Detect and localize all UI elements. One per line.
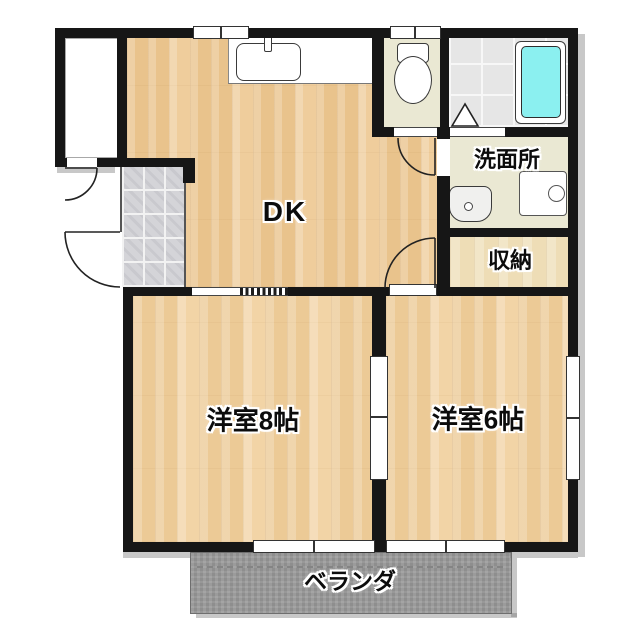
window-room6-veranda-tick [445, 540, 447, 553]
washing-machine-drain-icon [548, 185, 565, 202]
genkan-tile-floor [122, 167, 184, 287]
dk-room8-opening [192, 287, 240, 296]
wash-basin-drain-icon [464, 202, 473, 211]
floor-plan: DK 洗面所 収納 洋室8帖 洋室6帖 ベランダ [0, 0, 640, 640]
storage-label: 収納 [488, 243, 532, 275]
wall-left-lower [123, 287, 133, 552]
shadow-veranda-right [511, 558, 517, 617]
shadow-closet-bottom [57, 167, 115, 173]
window-room6-right-tick [566, 417, 580, 419]
washroom-label: 洗面所 [474, 142, 540, 174]
dk-label: DK [263, 196, 307, 228]
wall-dk-toilet [372, 28, 384, 137]
shadow-veranda-bottom [196, 613, 517, 618]
room-divider-opening [370, 356, 388, 480]
dk-room8-sliding-door [240, 287, 288, 296]
window-room8-veranda-tick [313, 540, 315, 553]
genkan-left-line [120, 167, 122, 232]
shadow-bottom-right [510, 552, 578, 558]
room-divider-opening-tick [370, 416, 388, 418]
wall-genkan-stub [183, 167, 195, 183]
window-kitchen-tick [220, 26, 222, 39]
wall-closet-bottom-a [55, 158, 67, 167]
shadow-bottom-left [123, 552, 190, 558]
wall-closet-bottom-b [97, 158, 195, 167]
wall-toilet-bath [440, 38, 449, 127]
bathroom-door-opening [450, 127, 505, 137]
veranda-label: ベランダ [304, 562, 396, 596]
western-room-6-label: 洋室6帖 [432, 400, 524, 437]
window-toilet-tick [414, 26, 416, 39]
western-room-8-label: 洋室8帖 [207, 401, 299, 438]
closet-door-opening [67, 158, 97, 167]
wall-top [55, 28, 578, 38]
toilet-door-opening [394, 127, 437, 137]
wall-left-upper [55, 28, 65, 167]
wall-storage-top [437, 228, 578, 237]
genkan-step-line [184, 183, 186, 287]
room6-door-threshold [389, 284, 437, 296]
bathtub-icon [521, 46, 561, 118]
entrance-door-arc [65, 232, 120, 287]
washroom-door-opening [437, 139, 450, 176]
exterior-closet [65, 38, 118, 158]
toilet-icon [394, 56, 432, 104]
wall-closet-right [117, 38, 127, 167]
